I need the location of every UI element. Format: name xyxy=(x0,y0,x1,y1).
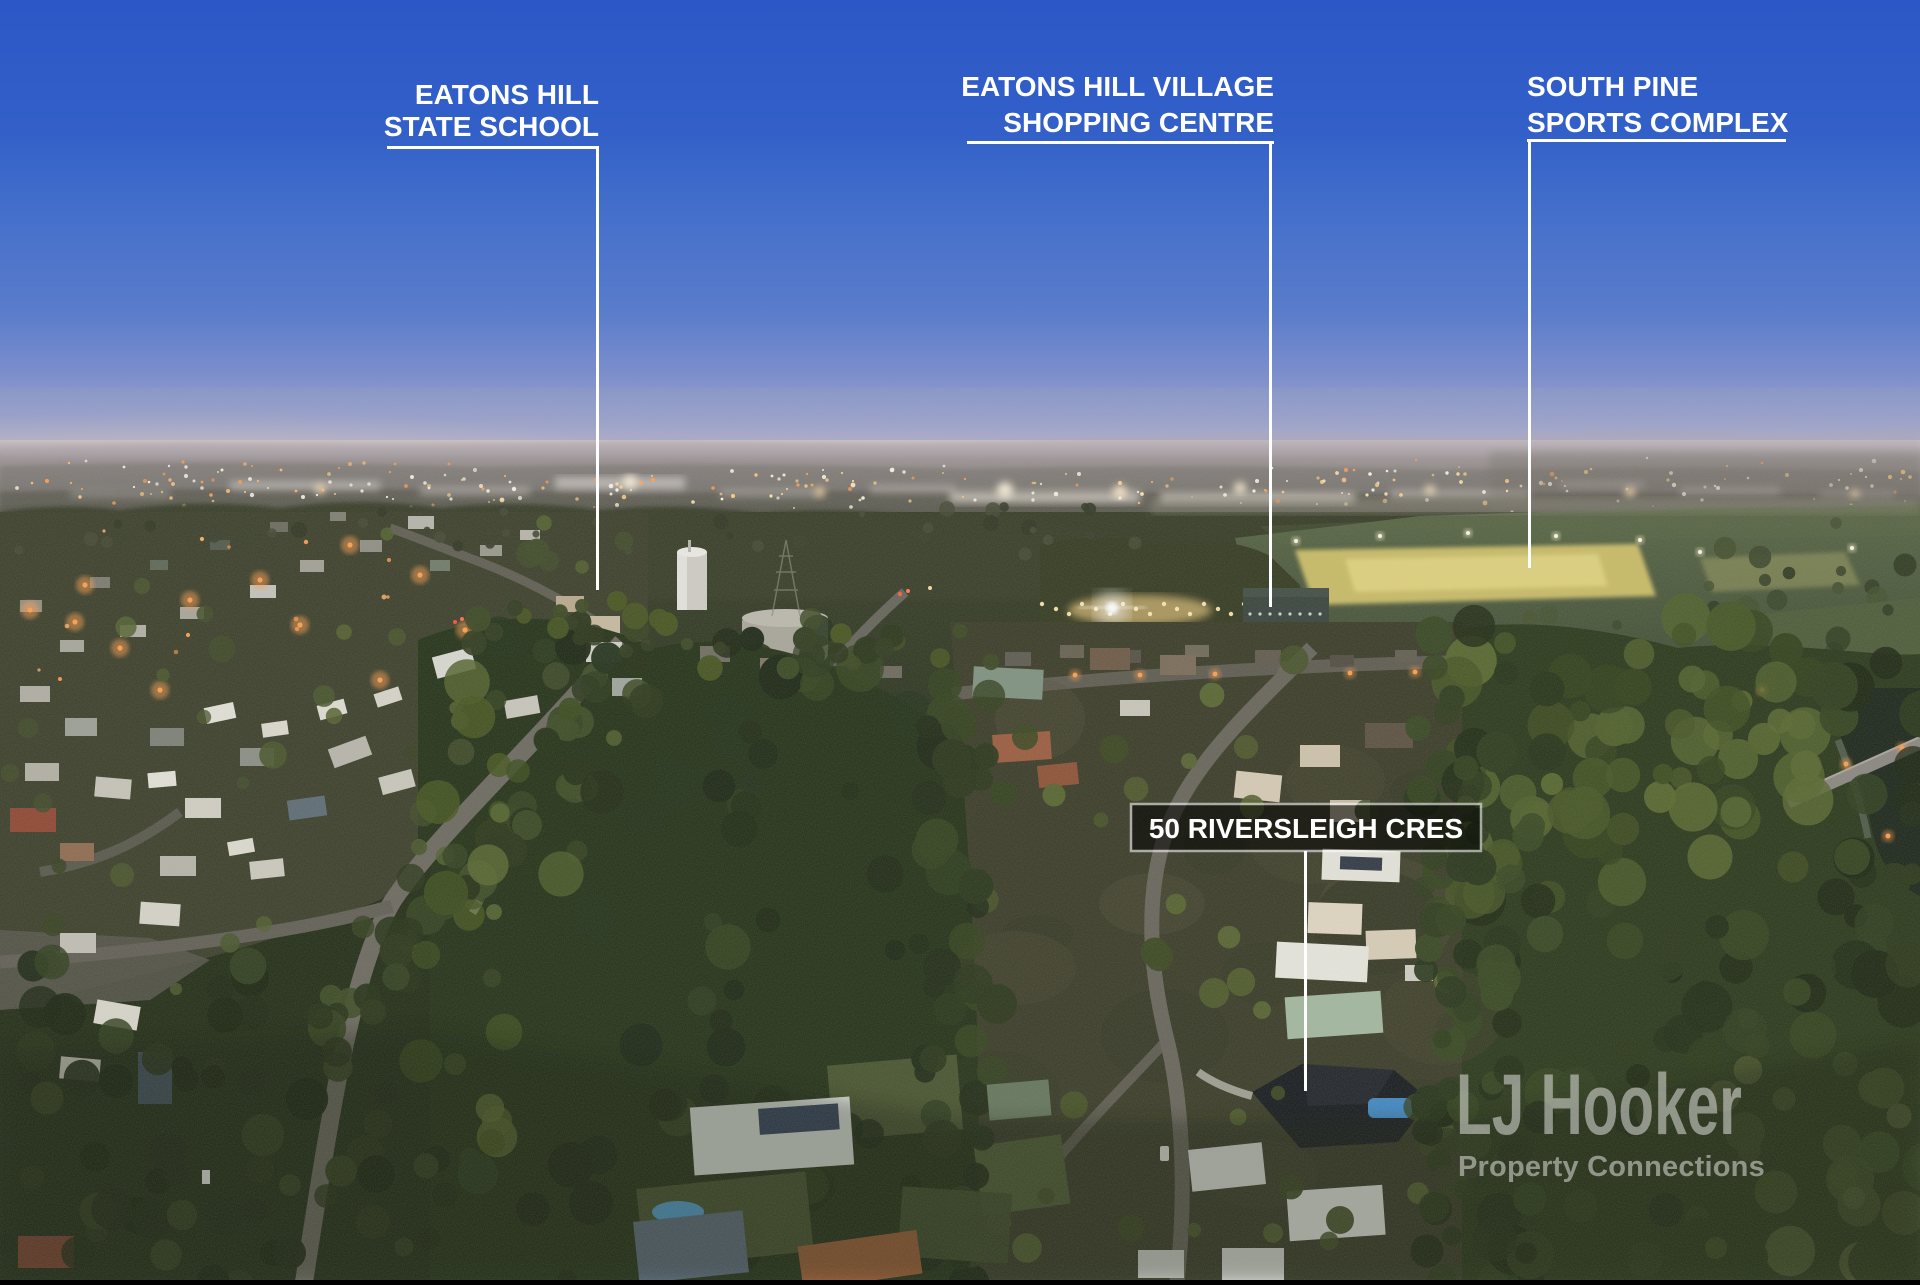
svg-text:STATE SCHOOL: STATE SCHOOL xyxy=(384,111,599,142)
svg-text:LJ Hooker: LJ Hooker xyxy=(1456,1056,1742,1153)
svg-text:50 RIVERSLEIGH CRES: 50 RIVERSLEIGH CRES xyxy=(1149,813,1463,844)
svg-text:EATONS HILL VILLAGE: EATONS HILL VILLAGE xyxy=(961,71,1274,102)
svg-text:SHOPPING CENTRE: SHOPPING CENTRE xyxy=(1003,107,1274,138)
svg-text:SOUTH PINE: SOUTH PINE xyxy=(1527,71,1698,102)
svg-text:EATONS HILL: EATONS HILL xyxy=(415,79,599,110)
svg-text:SPORTS COMPLEX: SPORTS COMPLEX xyxy=(1527,107,1789,138)
svg-text:Property Connections: Property Connections xyxy=(1458,1151,1765,1183)
